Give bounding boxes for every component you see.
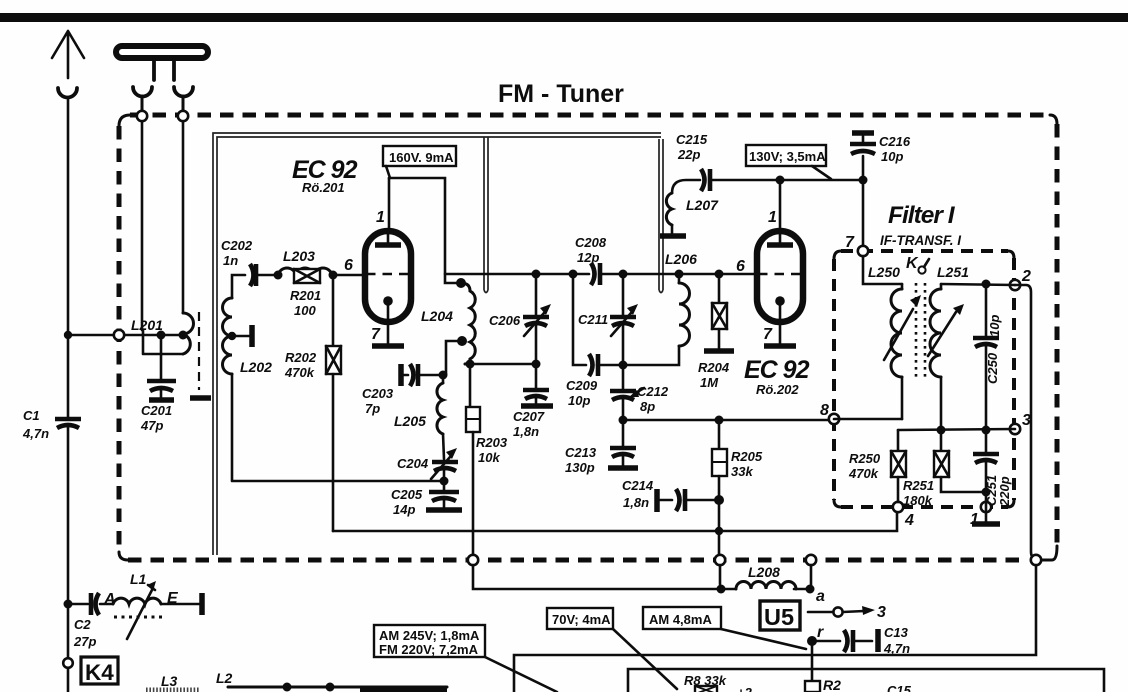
svg-text:AM 245V; 1,8mA: AM 245V; 1,8mA xyxy=(379,628,480,643)
svg-text:L207: L207 xyxy=(686,197,719,213)
svg-text:1,8n: 1,8n xyxy=(513,424,539,439)
svg-text:a: a xyxy=(816,588,825,605)
svg-text:4,7n: 4,7n xyxy=(22,426,49,441)
svg-text:L205: L205 xyxy=(394,413,426,429)
svg-text:160V. 9mA: 160V. 9mA xyxy=(389,150,454,165)
svg-text:1M: 1M xyxy=(700,375,719,390)
svg-text:100: 100 xyxy=(294,303,316,318)
svg-text:1: 1 xyxy=(768,209,777,226)
svg-text:FM 220V; 7,2mA: FM 220V; 7,2mA xyxy=(379,642,479,657)
svg-text:C213: C213 xyxy=(565,445,597,460)
svg-text:2: 2 xyxy=(1021,268,1031,285)
svg-text:C215: C215 xyxy=(676,132,708,147)
svg-text:C209: C209 xyxy=(566,378,598,393)
svg-text:1,8n: 1,8n xyxy=(623,495,649,510)
svg-text:L201: L201 xyxy=(131,317,163,333)
svg-text:8: 8 xyxy=(820,402,829,419)
svg-text:L250: L250 xyxy=(868,264,900,280)
svg-text:12p: 12p xyxy=(577,250,599,265)
svg-text:L202: L202 xyxy=(240,359,272,375)
svg-text:R251: R251 xyxy=(903,478,934,493)
svg-text:7: 7 xyxy=(763,326,773,343)
svg-text:R250: R250 xyxy=(849,451,881,466)
svg-text:U5: U5 xyxy=(764,604,794,630)
svg-text:C1: C1 xyxy=(23,408,40,423)
svg-text:C2: C2 xyxy=(74,617,91,632)
svg-text:3: 3 xyxy=(1022,412,1031,429)
svg-text:C13: C13 xyxy=(884,625,909,640)
svg-text:70V; 4mA: 70V; 4mA xyxy=(552,612,611,627)
svg-text:8p: 8p xyxy=(640,399,655,414)
svg-text:C201: C201 xyxy=(141,403,172,418)
svg-text:L208: L208 xyxy=(748,564,780,580)
svg-text:C206: C206 xyxy=(489,313,521,328)
svg-text:AM 4,8mA: AM 4,8mA xyxy=(649,612,712,627)
svg-text:Rö.202: Rö.202 xyxy=(756,382,799,397)
svg-text:10p: 10p xyxy=(881,149,903,164)
svg-text:R203: R203 xyxy=(476,435,508,450)
svg-text:L251: L251 xyxy=(937,264,969,280)
svg-text:R2: R2 xyxy=(823,677,841,692)
svg-text:C212: C212 xyxy=(637,384,669,399)
svg-text:14p: 14p xyxy=(393,502,415,517)
svg-text:C15: C15 xyxy=(887,683,912,692)
svg-text:L206: L206 xyxy=(665,251,697,267)
svg-text:27p: 27p xyxy=(73,634,96,649)
svg-text:R202: R202 xyxy=(285,350,317,365)
svg-text:130p: 130p xyxy=(565,460,595,475)
svg-text:1: 1 xyxy=(376,209,385,226)
svg-text:7: 7 xyxy=(845,234,855,251)
svg-text:R205: R205 xyxy=(731,449,763,464)
svg-text:180k: 180k xyxy=(903,493,933,508)
svg-text:C211: C211 xyxy=(578,312,608,327)
svg-text:Filter I: Filter I xyxy=(888,202,956,229)
svg-text:470k: 470k xyxy=(284,365,315,380)
svg-text:FM - Tuner: FM - Tuner xyxy=(498,80,624,108)
svg-text:10p: 10p xyxy=(987,315,1002,337)
svg-text:C250: C250 xyxy=(985,352,1000,384)
svg-text:L2: L2 xyxy=(216,670,233,686)
svg-text:1n: 1n xyxy=(223,253,238,268)
svg-text:K: K xyxy=(906,255,919,272)
svg-text:6: 6 xyxy=(344,257,353,274)
svg-text:R204: R204 xyxy=(698,360,730,375)
svg-text:C205: C205 xyxy=(391,487,423,502)
svg-text:4: 4 xyxy=(904,512,914,529)
svg-text:+2: +2 xyxy=(737,685,753,692)
svg-text:EC 92: EC 92 xyxy=(744,356,810,384)
svg-text:C202: C202 xyxy=(221,238,253,253)
svg-text:220p: 220p xyxy=(997,476,1012,507)
svg-text:6: 6 xyxy=(736,258,745,275)
svg-text:C214: C214 xyxy=(622,478,654,493)
svg-text:C204: C204 xyxy=(397,456,429,471)
svg-text:7p: 7p xyxy=(365,401,380,416)
svg-text:470k: 470k xyxy=(848,466,879,481)
svg-text:C207: C207 xyxy=(513,409,545,424)
svg-text:Rö.201: Rö.201 xyxy=(302,180,345,195)
svg-text:L203: L203 xyxy=(283,248,315,264)
svg-text:47p: 47p xyxy=(140,418,163,433)
svg-text:L3: L3 xyxy=(161,673,178,689)
svg-text:IF-TRANSF. I: IF-TRANSF. I xyxy=(880,233,961,248)
svg-text:10k: 10k xyxy=(478,450,500,465)
svg-text:C208: C208 xyxy=(575,235,607,250)
svg-text:22p: 22p xyxy=(677,147,700,162)
svg-text:C216: C216 xyxy=(879,134,911,149)
svg-text:L204: L204 xyxy=(421,308,453,324)
svg-text:K4: K4 xyxy=(85,660,114,685)
svg-text:R201: R201 xyxy=(290,288,321,303)
svg-text:L1: L1 xyxy=(130,571,147,587)
svg-text:r: r xyxy=(817,624,824,641)
svg-text:10p: 10p xyxy=(568,393,590,408)
svg-text:7: 7 xyxy=(371,326,381,343)
svg-text:C203: C203 xyxy=(362,386,394,401)
svg-text:A: A xyxy=(103,591,116,608)
svg-text:3: 3 xyxy=(877,604,886,621)
svg-text:130V; 3,5mA: 130V; 3,5mA xyxy=(749,149,826,164)
svg-text:33k: 33k xyxy=(731,464,753,479)
